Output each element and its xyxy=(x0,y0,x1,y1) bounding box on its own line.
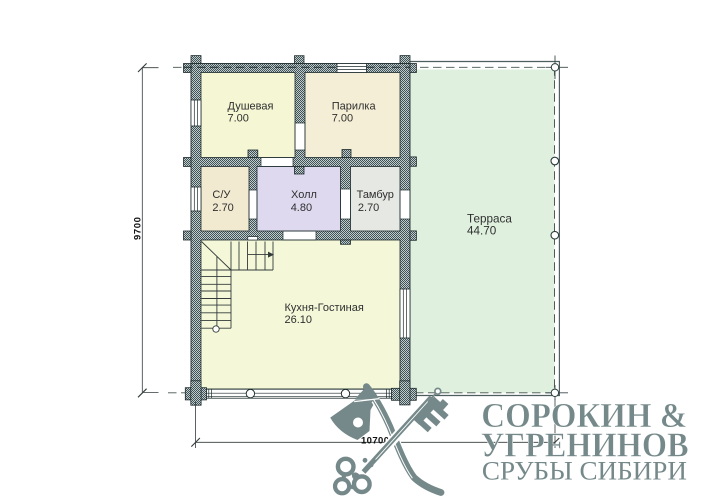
svg-text:7.00: 7.00 xyxy=(228,113,249,125)
svg-text:Душевая: Душевая xyxy=(228,101,274,113)
svg-text:9700: 9700 xyxy=(133,216,144,240)
svg-text:Холл: Холл xyxy=(291,189,317,201)
svg-text:Кухня-Гостиная: Кухня-Гостиная xyxy=(285,302,364,314)
svg-text:2.70: 2.70 xyxy=(212,202,233,214)
svg-text:7.00: 7.00 xyxy=(332,113,353,125)
svg-text:СРУБЫ СИБИРИ: СРУБЫ СИБИРИ xyxy=(482,457,687,486)
svg-text:Парилка: Парилка xyxy=(332,101,377,113)
svg-text:С/У: С/У xyxy=(212,189,231,201)
svg-text:Тамбур: Тамбур xyxy=(357,189,394,201)
svg-text:2.70: 2.70 xyxy=(358,202,379,214)
svg-text:26.10: 26.10 xyxy=(285,314,313,326)
svg-text:44.70: 44.70 xyxy=(467,224,497,237)
svg-text:4.80: 4.80 xyxy=(291,202,312,214)
